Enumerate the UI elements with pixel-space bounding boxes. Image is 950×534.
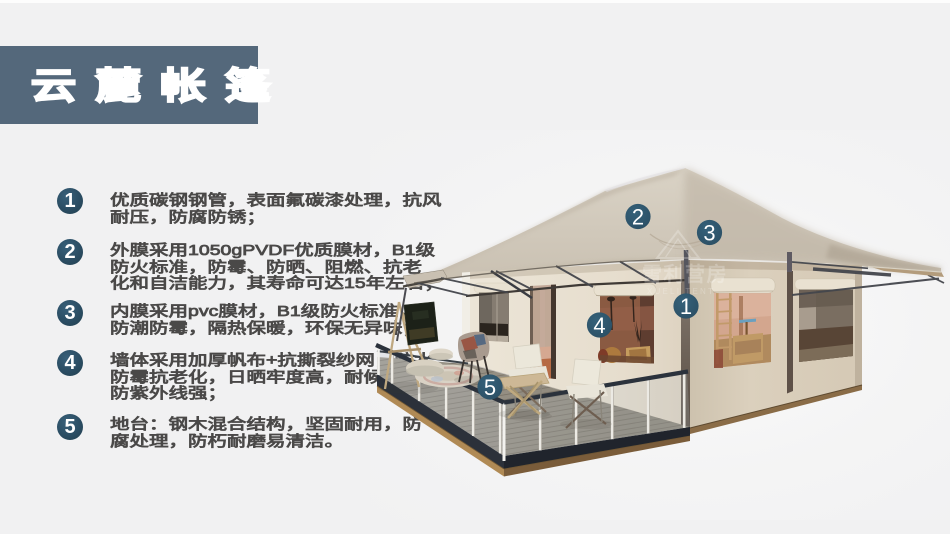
svg-text:5: 5	[484, 375, 496, 400]
svg-text:雪利营房: 雪利营房	[642, 262, 728, 286]
svg-text:4: 4	[593, 313, 605, 338]
svg-text:3: 3	[703, 221, 715, 246]
svg-text:2: 2	[632, 205, 644, 230]
svg-text:1: 1	[680, 294, 692, 319]
